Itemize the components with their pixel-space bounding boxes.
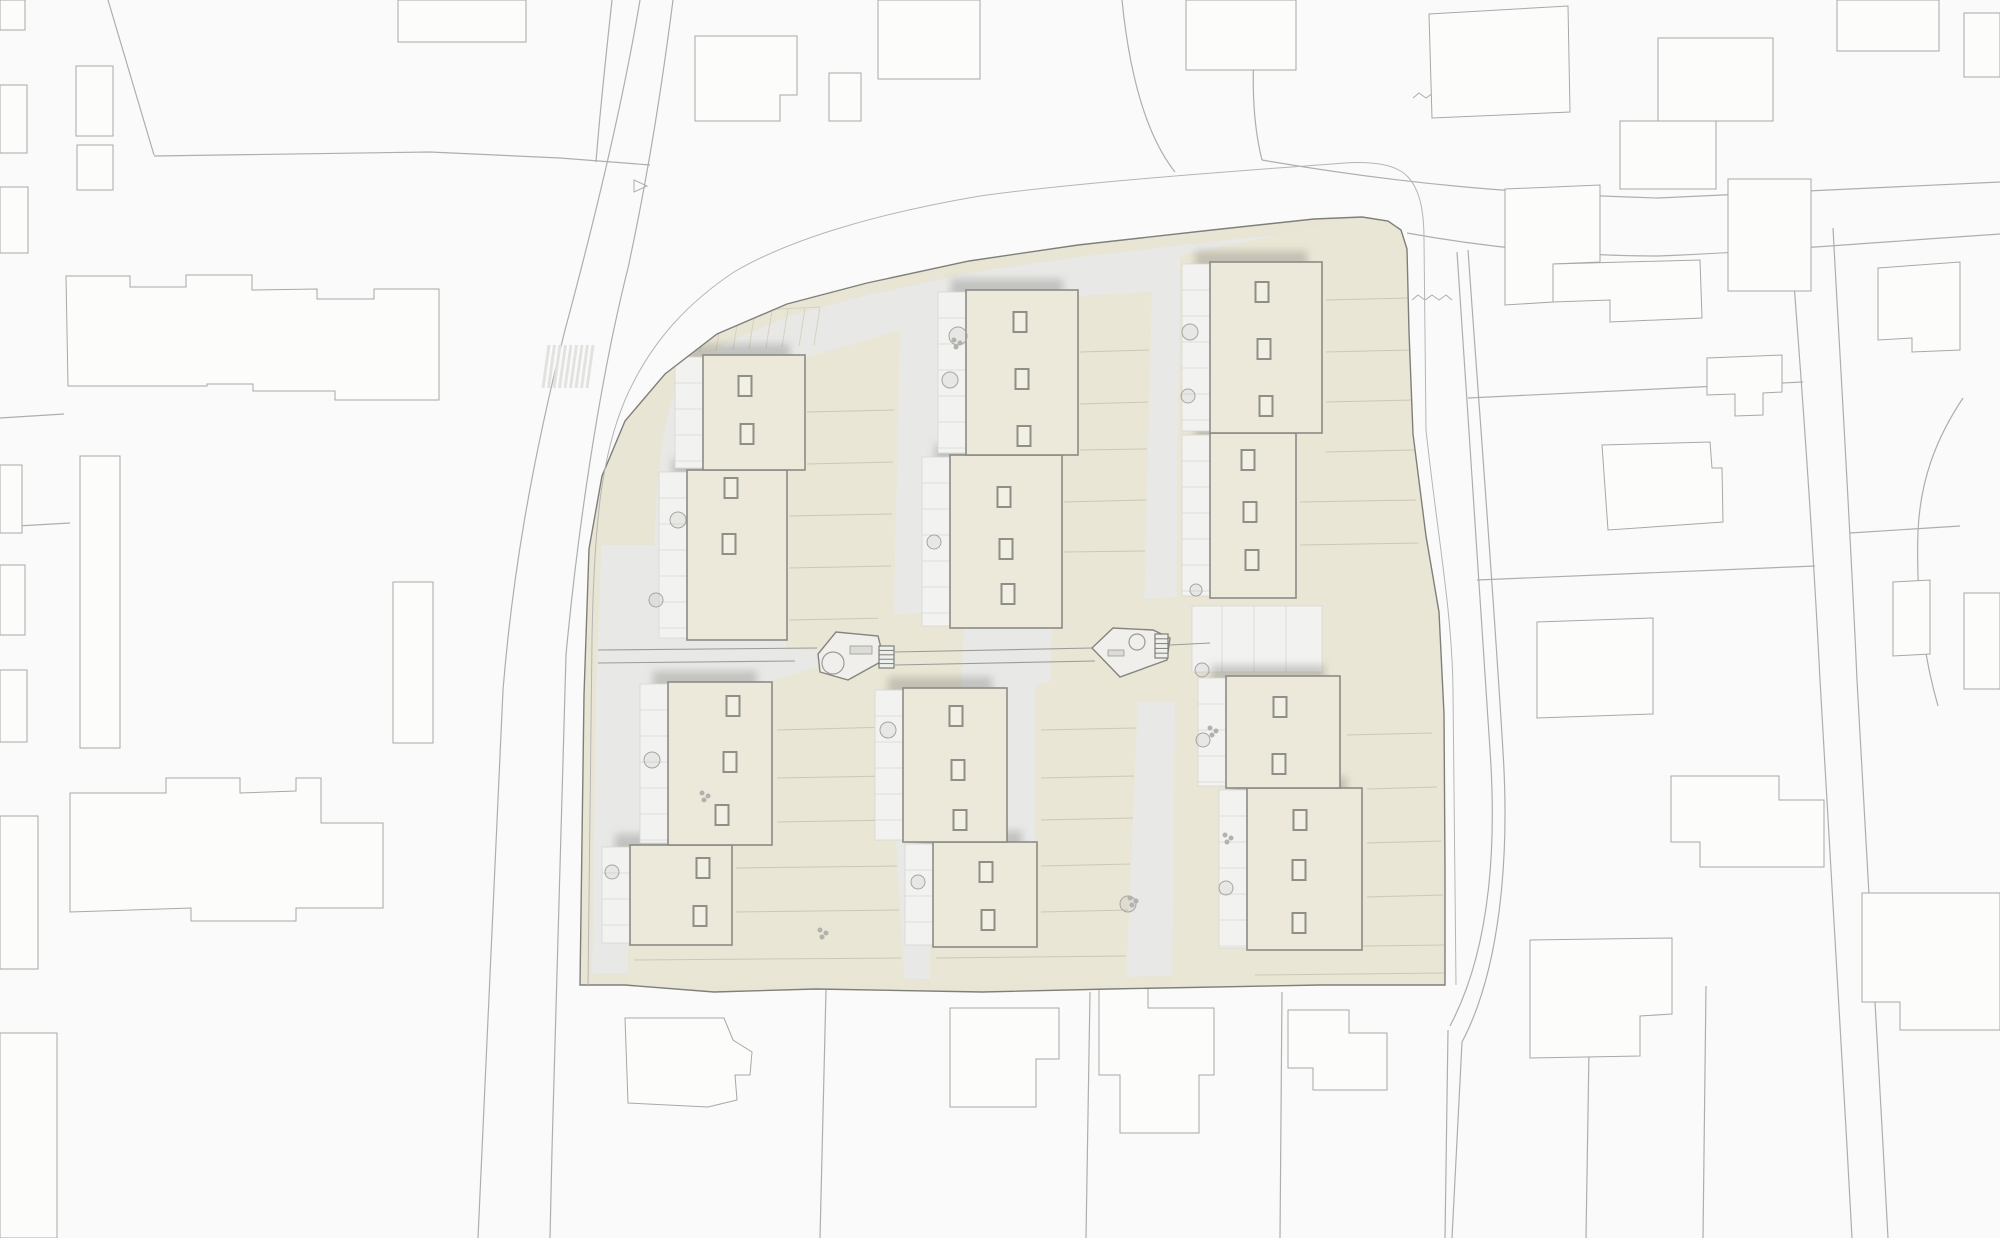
shrub-dot (952, 338, 957, 343)
road-line (108, 0, 154, 155)
skylight (1018, 426, 1031, 446)
access-balcony-strip (659, 472, 687, 638)
context-building (950, 1008, 1059, 1107)
building-4-roof (630, 845, 732, 945)
context-building (1537, 618, 1653, 718)
road-line (1445, 1030, 1448, 1238)
tree (1195, 663, 1209, 677)
fence-zigzag (1412, 295, 1452, 300)
context-building (1602, 442, 1723, 530)
context-building (1671, 776, 1824, 867)
skylight (952, 760, 965, 780)
skylight (1258, 339, 1271, 359)
shrub-dot (1223, 833, 1228, 838)
access-balcony-strip (1198, 678, 1226, 786)
context-building (1862, 893, 2000, 1030)
shrub-dot (700, 791, 705, 796)
skylight (1256, 282, 1269, 302)
context-building (1707, 355, 1782, 416)
site-plan-stage (0, 0, 2000, 1238)
tree (1219, 881, 1233, 895)
context-building (1658, 38, 1773, 121)
context-building (1288, 1010, 1387, 1090)
skylight (998, 487, 1011, 507)
tree (880, 722, 896, 738)
access-balcony-strip (1219, 790, 1247, 948)
context-building (1878, 262, 1960, 352)
skylight (980, 862, 993, 882)
context-building (1186, 0, 1296, 70)
tree (911, 875, 925, 889)
tree (1182, 324, 1198, 340)
skylight (694, 906, 707, 926)
shrub-dot (1130, 903, 1135, 908)
skylight (723, 534, 736, 554)
shrub-dot (1225, 840, 1230, 845)
shrub-dot (824, 931, 829, 936)
development-site-layer (580, 211, 1445, 992)
skylight (727, 696, 740, 716)
context-building (695, 36, 797, 121)
shrub-dot (1214, 729, 1219, 734)
context-building (1837, 0, 1939, 51)
shrub-dot (1134, 899, 1139, 904)
stairs (879, 646, 894, 668)
road-line (1086, 992, 1090, 1238)
skylight (1273, 754, 1286, 774)
skylight (1293, 860, 1306, 880)
skylight (1246, 550, 1259, 570)
context-building (80, 456, 120, 748)
skylight (725, 478, 738, 498)
shrub-dot (954, 345, 959, 350)
context-building (1620, 121, 1716, 189)
shrub-dot (958, 341, 963, 346)
access-balcony-strip (875, 690, 903, 840)
context-building (1530, 938, 1672, 1058)
access-balcony-strip (905, 844, 933, 945)
tree (1196, 733, 1210, 747)
context-building (1893, 580, 1930, 656)
context-building (0, 816, 38, 969)
access-balcony-strip (675, 357, 703, 468)
terrace-strip (1192, 606, 1322, 672)
skylight (697, 858, 710, 878)
skylight (1002, 584, 1015, 604)
bench (1108, 650, 1124, 656)
context-building (77, 145, 113, 190)
road-line (1452, 250, 1505, 1238)
skylight (982, 910, 995, 930)
context-building (0, 0, 25, 30)
context-building (829, 73, 861, 121)
entrance-curb (952, 238, 1004, 249)
road-line (1450, 252, 1492, 1026)
skylight (1000, 539, 1013, 559)
tree (670, 512, 686, 528)
access-balcony-strip (1182, 435, 1210, 596)
shrub-dot (1128, 896, 1133, 901)
road-line (1407, 233, 2000, 256)
road-line (1477, 566, 1815, 580)
context-building (1964, 593, 2000, 689)
tree (649, 593, 663, 607)
skylight (739, 376, 752, 396)
bike-rack (1006, 229, 1048, 240)
context-building (0, 465, 22, 533)
context-building (1099, 985, 1214, 1133)
building-5-roof (933, 842, 1037, 947)
shrub-dot (1210, 733, 1215, 738)
context-building (878, 0, 980, 79)
skylight (741, 424, 754, 444)
road-line (1918, 398, 1963, 706)
shrub-dot (1208, 726, 1213, 731)
context-building (1429, 6, 1570, 118)
skylight (1294, 810, 1307, 830)
context-building (76, 66, 113, 136)
context-building (0, 187, 28, 253)
tree (927, 535, 941, 549)
context-building (0, 85, 27, 153)
context-building (1553, 260, 1702, 322)
skylight (1274, 697, 1287, 717)
skylight (1014, 312, 1027, 332)
skylight (1244, 502, 1257, 522)
context-building (398, 0, 526, 42)
shrub-dot (820, 935, 825, 940)
road-line (1703, 986, 1706, 1238)
site-inner-group (580, 211, 1445, 992)
access-balcony-strip (1182, 264, 1210, 431)
road-line (1850, 526, 1960, 533)
shrub-dot (702, 798, 707, 803)
context-building (1964, 13, 2000, 77)
skylight (1242, 450, 1255, 470)
access-balcony-strip (602, 847, 630, 943)
stairs (1155, 634, 1168, 658)
skylight (724, 752, 737, 772)
context-building (70, 778, 383, 921)
context-building (66, 275, 439, 400)
skylight (1016, 369, 1029, 389)
road-line (1790, 232, 1852, 1238)
shrub-dot (1229, 836, 1234, 841)
road-line (596, 0, 612, 162)
skylight (1293, 913, 1306, 933)
bench (850, 646, 872, 654)
shrub-dot (706, 794, 711, 799)
context-building (1728, 179, 1811, 291)
tree (1181, 389, 1195, 403)
skylight (1260, 396, 1273, 416)
road-line (1280, 992, 1282, 1238)
road-line (0, 414, 64, 418)
tree (644, 752, 660, 768)
tree (605, 865, 619, 879)
tree (942, 372, 958, 388)
skylight (950, 706, 963, 726)
building-1-roof (703, 355, 805, 470)
road-line (1833, 228, 1888, 1238)
context-building (625, 1018, 752, 1107)
skylight (716, 805, 729, 825)
shrub-dot (818, 928, 823, 933)
context-building (393, 582, 433, 743)
road-line (154, 152, 650, 165)
skylight (954, 810, 967, 830)
context-building (0, 670, 27, 742)
road-line (1122, 0, 1175, 172)
context-building (0, 565, 25, 635)
road-line (820, 990, 826, 1238)
architectural-site-plan (0, 0, 2000, 1238)
tree (1190, 584, 1202, 596)
context-building (0, 1033, 57, 1238)
